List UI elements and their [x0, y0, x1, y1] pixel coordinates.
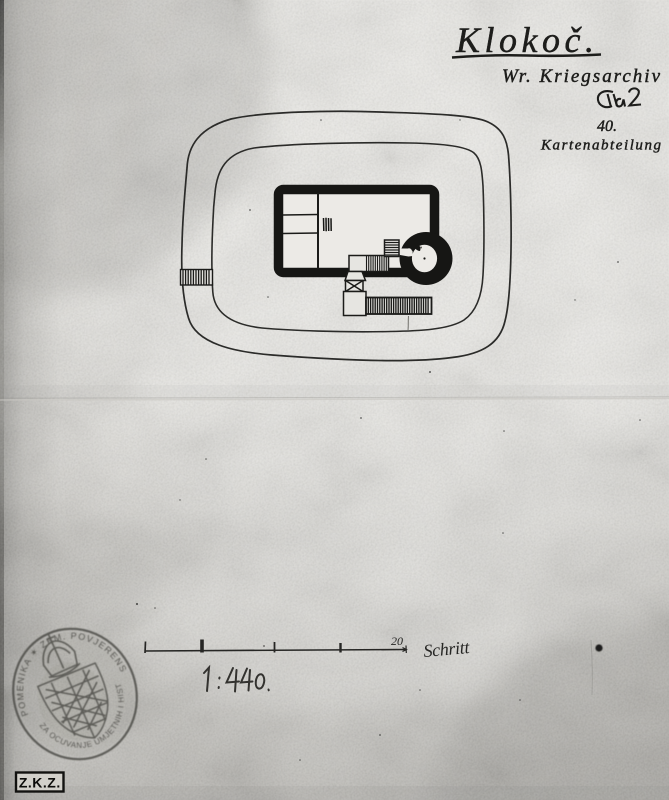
svg-text:Schritt: Schritt: [423, 637, 472, 661]
svg-text:Z.K.Z.: Z.K.Z.: [19, 775, 61, 791]
svg-text:20: 20: [391, 634, 403, 648]
svg-text:Klokoč.: Klokoč.: [455, 20, 594, 60]
svg-text:Wr. Kriegsarchiv: Wr. Kriegsarchiv: [502, 66, 661, 87]
svg-text:40.: 40.: [597, 118, 617, 135]
